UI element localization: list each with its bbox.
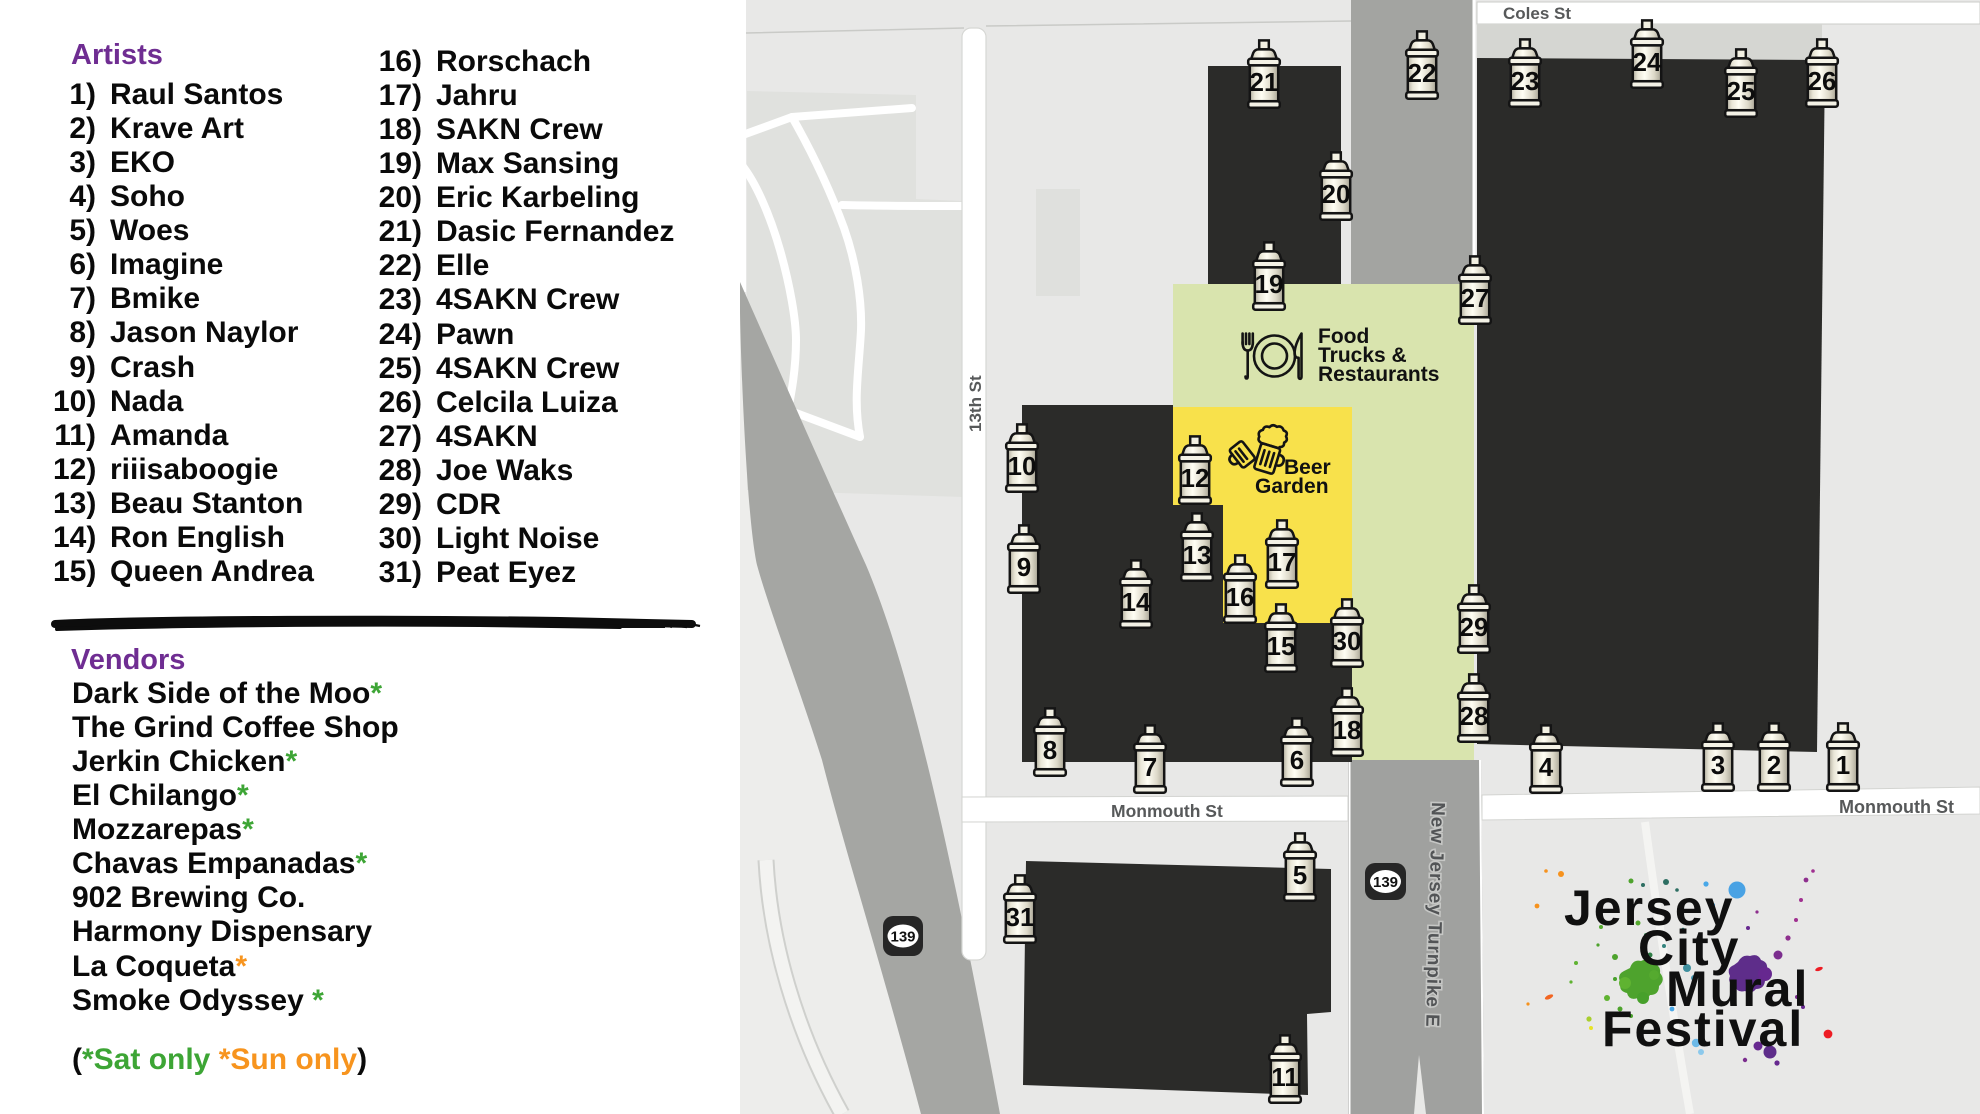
svg-text:30: 30 <box>1333 626 1362 656</box>
svg-text:Monmouth St: Monmouth St <box>1111 801 1223 821</box>
svg-text:22: 22 <box>1408 58 1437 88</box>
svg-text:29: 29 <box>1460 612 1489 642</box>
svg-text:27: 27 <box>1461 283 1490 313</box>
svg-text:13th St: 13th St <box>966 375 985 432</box>
svg-text:13: 13 <box>1183 540 1212 570</box>
svg-text:23: 23 <box>1511 66 1540 96</box>
svg-text:19: 19 <box>1255 269 1284 299</box>
svg-text:17: 17 <box>1268 547 1297 577</box>
svg-text:5: 5 <box>1293 860 1307 890</box>
svg-text:7: 7 <box>1143 752 1157 782</box>
svg-text:12: 12 <box>1181 463 1210 493</box>
svg-text:139: 139 <box>890 929 915 946</box>
svg-text:1: 1 <box>1836 750 1850 780</box>
svg-text:16: 16 <box>1226 582 1255 612</box>
svg-text:24: 24 <box>1633 47 1662 77</box>
svg-text:Monmouth St: Monmouth St <box>1839 797 1954 817</box>
svg-text:6: 6 <box>1290 745 1304 775</box>
svg-text:18: 18 <box>1333 715 1362 745</box>
svg-text:26: 26 <box>1808 66 1837 96</box>
svg-text:8: 8 <box>1043 735 1057 765</box>
svg-text:9: 9 <box>1017 552 1031 582</box>
svg-text:15: 15 <box>1267 631 1296 661</box>
svg-text:25: 25 <box>1727 76 1756 106</box>
svg-text:Festival: Festival <box>1602 1001 1804 1057</box>
svg-text:Restaurants: Restaurants <box>1318 363 1439 386</box>
svg-text:28: 28 <box>1460 701 1489 731</box>
svg-text:20: 20 <box>1322 179 1351 209</box>
svg-text:4: 4 <box>1539 752 1554 782</box>
svg-text:10: 10 <box>1008 451 1037 481</box>
svg-text:Garden: Garden <box>1255 475 1329 498</box>
svg-text:3: 3 <box>1711 750 1725 780</box>
svg-text:11: 11 <box>1271 1062 1299 1092</box>
svg-text:2: 2 <box>1767 750 1781 780</box>
svg-text:21: 21 <box>1250 67 1279 97</box>
svg-text:Coles St: Coles St <box>1503 4 1571 23</box>
svg-text:14: 14 <box>1122 587 1151 617</box>
svg-text:139: 139 <box>1373 874 1398 891</box>
svg-text:31: 31 <box>1006 902 1035 932</box>
